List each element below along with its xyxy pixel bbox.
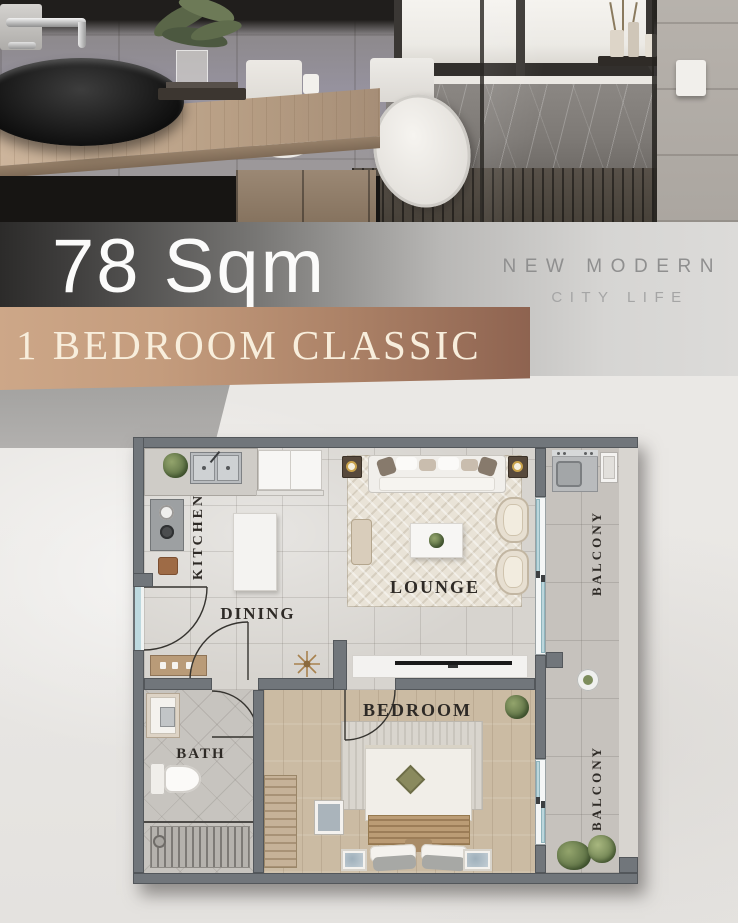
right-tile-column [657,0,738,222]
label-dining: DINING [208,604,308,624]
bedroom-balcony-glass-door [535,759,546,845]
wall-divider-bedroom [395,678,535,690]
label-balcony-bottom: BALCONY [589,740,606,835]
faucet-handle [8,42,36,49]
label-bedroom: BEDROOM [363,700,463,721]
floor-plan: KITCHEN DINING LOUNGE BEDROOM BATH BALCO… [133,437,638,884]
glass-reflection [484,0,652,222]
bronze-banner: 1 BEDROOM CLASSIC [0,307,530,390]
tagline-city-life: CITY LIFE [540,289,700,306]
area-title: 78 Sqm [52,226,326,308]
wall-left-stub [133,573,153,587]
wall-left-lower [133,650,144,873]
wall-balcony-top [535,448,546,497]
counter-tray [158,88,246,100]
wood-cabinet [236,170,376,222]
wall-bath-bedroom [253,690,264,873]
wall-corner-block [619,857,638,873]
towel [676,60,706,96]
wall-divider-hall [258,678,345,690]
wall-divider-bath [144,678,212,690]
label-lounge: LOUNGE [385,577,485,598]
label-balcony-top: BALCONY [589,505,606,600]
unit-type-title: 1 BEDROOM CLASSIC [0,321,482,377]
shower-glass-frame [652,0,657,222]
wall-top [133,437,638,448]
wall-bottom [133,873,638,884]
label-bath: BATH [161,746,241,763]
wall-balcony-stub [546,652,563,668]
faucet-spout-icon [6,18,86,27]
wall-balcony-bottom [535,845,546,873]
flyer-page: 78 Sqm NEW MODERN CITY LIFE 1 BEDROOM CL… [0,0,738,923]
lounge-balcony-glass-door [535,497,546,655]
label-kitchen: KITCHEN [191,495,209,580]
tagline-new-modern: NEW MODERN [498,256,722,278]
wall-left-upper [133,437,144,587]
wall-balcony-mid [535,655,546,759]
hero-bathroom-photo [0,0,738,222]
faucet-drop [78,22,86,48]
wall-spur [333,640,347,690]
